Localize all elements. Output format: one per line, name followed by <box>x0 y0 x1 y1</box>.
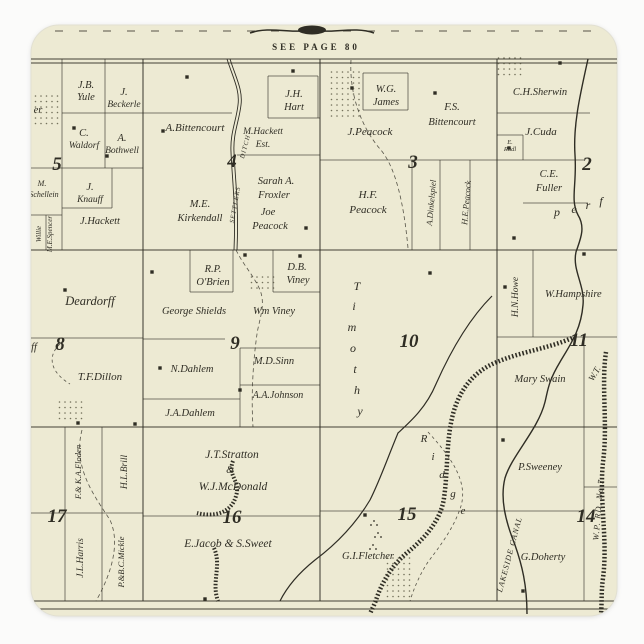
owner-name: A.A.Johnson <box>252 390 304 401</box>
marsh-symbol-dot <box>374 536 376 538</box>
owner-name: M.E.Spencer <box>46 216 54 253</box>
orchard-stipple-dot <box>256 282 258 284</box>
building-square <box>238 388 241 391</box>
owner-name: Deardorff <box>64 294 116 308</box>
see-page-note: SEE PAGE 80 <box>272 42 360 52</box>
owner-name: A.Bittencourt <box>165 122 226 134</box>
marsh-symbol-dot <box>373 520 375 522</box>
orchard-stipple-dot <box>342 82 344 84</box>
owner-name: Froxler <box>257 190 291 201</box>
orchard-stipple-dot <box>251 276 253 278</box>
building-square <box>203 597 206 600</box>
orchard-stipple-dot <box>336 99 338 101</box>
orchard-stipple-dot <box>503 57 505 59</box>
orchard-stipple-dot <box>70 418 72 420</box>
orchard-stipple-dot <box>331 93 333 95</box>
owner-name: J.Peacock <box>348 126 394 138</box>
owner-name: Joe <box>261 207 276 218</box>
orchard-stipple-dot <box>57 112 59 114</box>
orchard-stipple-dot <box>342 77 344 79</box>
orchard-stipple-dot <box>353 115 355 117</box>
marsh-symbol-dot <box>370 524 372 526</box>
building-square <box>291 69 294 72</box>
owner-name: F.& K.A.Floden <box>73 445 83 500</box>
orchard-stipple-dot <box>403 596 405 598</box>
orchard-stipple-dot <box>40 95 42 97</box>
building-square <box>501 438 504 441</box>
orchard-stipple-dot <box>342 115 344 117</box>
orchard-stipple-dot <box>57 95 59 97</box>
orchard-stipple-dot <box>398 585 400 587</box>
owner-name: P.Sweeney <box>517 462 562 473</box>
owner-name: J.Hackett <box>80 216 121 227</box>
orchard-stipple-dot <box>342 93 344 95</box>
owner-name: W.Hampshire <box>545 289 602 300</box>
orchard-stipple-dot <box>59 407 61 409</box>
orchard-stipple-dot <box>35 123 37 125</box>
orchard-stipple-dot <box>331 88 333 90</box>
timothy-letter: m <box>348 320 357 334</box>
orchard-stipple-dot <box>520 63 522 65</box>
orchard-stipple-dot <box>387 557 389 559</box>
building-square <box>363 513 366 516</box>
owner-name: James <box>373 97 399 108</box>
orchard-stipple-dot <box>51 117 53 119</box>
orchard-stipple-dot <box>81 401 83 403</box>
owner-name: H.F. <box>358 189 378 201</box>
orchard-stipple-dot <box>336 93 338 95</box>
orchard-stipple-dot <box>398 557 400 559</box>
orchard-stipple-dot <box>57 106 59 108</box>
orchard-stipple-dot <box>358 104 360 106</box>
plat-map-sticker: SEE PAGE 80 J.B.YuleJ.BeckerleC.WaldorfA… <box>0 0 644 644</box>
building-square <box>243 253 246 256</box>
orchard-stipple-dot <box>51 123 53 125</box>
owner-name: C. <box>79 128 89 139</box>
orchard-stipple-dot <box>35 101 37 103</box>
orchard-stipple-dot <box>267 287 269 289</box>
orchard-stipple-dot <box>59 401 61 403</box>
orchard-stipple-dot <box>273 287 275 289</box>
orchard-stipple-dot <box>358 99 360 101</box>
orchard-stipple-dot <box>256 287 258 289</box>
orchard-stipple-dot <box>46 112 48 114</box>
owner-name: Peacock <box>348 204 387 216</box>
owner-name: Yule <box>77 92 95 103</box>
marsh-symbol-dot <box>372 544 374 546</box>
orchard-stipple-dot <box>353 104 355 106</box>
orchard-stipple-dot <box>51 112 53 114</box>
marsh-symbol-dot <box>369 548 371 550</box>
section-number: 4 <box>226 151 237 172</box>
orchard-stipple-dot <box>392 579 394 581</box>
building-square <box>185 75 188 78</box>
building-square <box>63 288 66 291</box>
orchard-stipple-dot <box>75 418 77 420</box>
ridge-letter: R <box>420 433 428 445</box>
owner-name: Willie <box>35 226 43 242</box>
orchard-stipple-dot <box>387 563 389 565</box>
orchard-stipple-dot <box>35 112 37 114</box>
orchard-stipple-dot <box>392 568 394 570</box>
orchard-stipple-dot <box>347 82 349 84</box>
orchard-stipple-dot <box>353 77 355 79</box>
orchard-stipple-dot <box>347 93 349 95</box>
marsh-symbol-dot <box>376 524 378 526</box>
orchard-stipple-dot <box>273 282 275 284</box>
owner-name: Fuller <box>535 183 563 194</box>
orchard-stipple-dot <box>262 276 264 278</box>
owner-name: J.B. <box>78 80 94 91</box>
orchard-stipple-dot <box>64 401 66 403</box>
owner-name: Mary Swain <box>513 374 565 385</box>
orchard-stipple-dot <box>358 93 360 95</box>
section-number: 15 <box>398 504 418 525</box>
orchard-stipple-dot <box>342 71 344 73</box>
owner-name: Viney <box>286 275 309 286</box>
timothy-letter: h <box>354 383 360 397</box>
section-number: 8 <box>55 334 65 355</box>
owner-name: Knauff <box>76 194 104 205</box>
section-number: 10 <box>400 331 420 352</box>
orchard-stipple-dot <box>509 63 511 65</box>
orchard-stipple-dot <box>51 106 53 108</box>
orchard-stipple-dot <box>514 63 516 65</box>
orchard-stipple-dot <box>498 57 500 59</box>
orchard-stipple-dot <box>331 71 333 73</box>
orchard-stipple-dot <box>353 71 355 73</box>
orchard-stipple-dot <box>503 63 505 65</box>
orchard-stipple-dot <box>40 117 42 119</box>
orchard-stipple-dot <box>331 110 333 112</box>
orchard-stipple-dot <box>251 282 253 284</box>
owner-name: Peacock <box>251 221 288 232</box>
orchard-stipple-dot <box>256 276 258 278</box>
orchard-stipple-dot <box>387 568 389 570</box>
orchard-stipple-dot <box>409 579 411 581</box>
sticker-paper <box>31 25 617 616</box>
orchard-stipple-dot <box>514 57 516 59</box>
building-square <box>298 254 301 257</box>
orchard-stipple-dot <box>398 563 400 565</box>
orchard-stipple-dot <box>398 568 400 570</box>
owner-name: D.B. <box>286 262 306 273</box>
owner-name: E.Jacob & S.Sweet <box>183 538 272 550</box>
owner-name: G.I.Fletcher <box>342 551 395 562</box>
owner-name: Est. <box>255 140 271 150</box>
orchard-stipple-dot <box>336 115 338 117</box>
ridge-letter: d <box>439 469 445 481</box>
orchard-stipple-dot <box>347 88 349 90</box>
owner-name: F.S. <box>443 102 460 113</box>
orchard-stipple-dot <box>59 412 61 414</box>
orchard-stipple-dot <box>398 579 400 581</box>
orchard-stipple-dot <box>514 74 516 76</box>
owner-name: C.H.Sherwin <box>513 87 567 98</box>
building-square <box>507 146 510 149</box>
orchard-stipple-dot <box>403 590 405 592</box>
orchard-stipple-dot <box>35 106 37 108</box>
orchard-stipple-dot <box>353 93 355 95</box>
owner-name: M. <box>37 179 47 188</box>
orchard-stipple-dot <box>70 412 72 414</box>
orchard-stipple-dot <box>40 101 42 103</box>
orchard-stipple-dot <box>347 104 349 106</box>
section-number: 16 <box>223 507 243 528</box>
owner-name: Sarah A. <box>258 176 295 187</box>
sticker-product-page: SEE PAGE 80 J.B.YuleJ.BeckerleC.WaldorfA… <box>0 0 644 644</box>
owner-name: H.N.Howe <box>511 277 521 318</box>
owner-name: T.F.Dillon <box>78 371 123 383</box>
owner-name: J.Cuda <box>525 126 557 138</box>
orchard-stipple-dot <box>70 407 72 409</box>
orchard-stipple-dot <box>40 123 42 125</box>
timothy-letter: i <box>352 299 355 313</box>
orchard-stipple-dot <box>409 585 411 587</box>
orchard-stipple-dot <box>46 106 48 108</box>
building-square <box>161 129 164 132</box>
orchard-stipple-dot <box>387 585 389 587</box>
orchard-stipple-dot <box>40 106 42 108</box>
marsh-symbol-dot <box>380 536 382 538</box>
orchard-stipple-dot <box>353 82 355 84</box>
orchard-stipple-dot <box>51 101 53 103</box>
owner-name: O'Brien <box>196 277 229 288</box>
orchard-stipple-dot <box>331 77 333 79</box>
owner-name: p <box>553 205 560 219</box>
orchard-stipple-dot <box>75 407 77 409</box>
building-square <box>304 226 307 229</box>
orchard-stipple-dot <box>347 77 349 79</box>
orchard-stipple-dot <box>347 115 349 117</box>
owner-name: M.D.Sinn <box>253 356 294 367</box>
marsh-symbol-dot <box>377 532 379 534</box>
owner-name: G.Doherty <box>521 552 566 563</box>
orchard-stipple-dot <box>387 579 389 581</box>
orchard-stipple-dot <box>509 74 511 76</box>
orchard-stipple-dot <box>342 99 344 101</box>
orchard-stipple-dot <box>75 401 77 403</box>
map-line <box>296 21 328 24</box>
orchard-stipple-dot <box>81 412 83 414</box>
orchard-stipple-dot <box>392 574 394 576</box>
orchard-stipple-dot <box>40 112 42 114</box>
orchard-stipple-dot <box>331 99 333 101</box>
orchard-stipple-dot <box>347 99 349 101</box>
orchard-stipple-dot <box>409 557 411 559</box>
owner-name: Beckerle <box>107 100 140 110</box>
section-number: 11 <box>570 330 588 351</box>
orchard-stipple-dot <box>514 68 516 70</box>
owner-name: M.E. <box>189 199 210 210</box>
orchard-stipple-dot <box>503 74 505 76</box>
orchard-stipple-dot <box>358 110 360 112</box>
owner-name: J. <box>120 87 127 98</box>
orchard-stipple-dot <box>331 82 333 84</box>
orchard-stipple-dot <box>409 563 411 565</box>
ridge-letter: i <box>431 451 434 463</box>
orchard-stipple-dot <box>403 585 405 587</box>
orchard-stipple-dot <box>336 77 338 79</box>
orchard-stipple-dot <box>81 407 83 409</box>
owner-name: E. <box>506 139 513 146</box>
orchard-stipple-dot <box>353 110 355 112</box>
owner-name: & <box>226 465 234 476</box>
orchard-stipple-dot <box>353 88 355 90</box>
building-square <box>150 270 153 273</box>
owner-name: J.L.Harris <box>76 538 86 578</box>
orchard-stipple-dot <box>403 568 405 570</box>
orchard-stipple-dot <box>46 117 48 119</box>
orchard-stipple-dot <box>331 104 333 106</box>
orchard-stipple-dot <box>392 563 394 565</box>
section-number: 5 <box>52 154 62 175</box>
building-square <box>433 91 436 94</box>
orchard-stipple-dot <box>347 110 349 112</box>
orchard-stipple-dot <box>398 596 400 598</box>
orchard-stipple-dot <box>342 110 344 112</box>
orchard-stipple-dot <box>358 77 360 79</box>
orchard-stipple-dot <box>336 88 338 90</box>
section-number: 2 <box>581 154 592 175</box>
orchard-stipple-dot <box>51 95 53 97</box>
owner-name: Wm Viney <box>253 306 295 317</box>
ridge-letter: e <box>461 505 466 517</box>
orchard-stipple-dot <box>57 117 59 119</box>
orchard-stipple-dot <box>75 412 77 414</box>
owner-name: R.P. <box>204 264 222 275</box>
orchard-stipple-dot <box>358 82 360 84</box>
owner-name: J.H. <box>285 89 303 100</box>
orchard-stipple-dot <box>331 115 333 117</box>
orchard-stipple-dot <box>64 412 66 414</box>
owner-name: J. <box>86 182 93 193</box>
orchard-stipple-dot <box>81 418 83 420</box>
owner-name: A. <box>116 133 126 144</box>
section-number: 3 <box>407 152 418 173</box>
orchard-stipple-dot <box>46 101 48 103</box>
orchard-stipple-dot <box>520 68 522 70</box>
owner-name: W.G. <box>376 84 397 95</box>
orchard-stipple-dot <box>267 276 269 278</box>
building-square <box>512 236 515 239</box>
owner-name: Schellein <box>29 190 58 199</box>
owner-name: Kirkendall <box>177 213 223 224</box>
orchard-stipple-dot <box>57 101 59 103</box>
orchard-stipple-dot <box>498 68 500 70</box>
orchard-stipple-dot <box>64 407 66 409</box>
owner-name: N.Dahlem <box>170 364 214 375</box>
ridge-letter: g <box>450 488 456 500</box>
orchard-stipple-dot <box>403 557 405 559</box>
orchard-stipple-dot <box>387 590 389 592</box>
orchard-stipple-dot <box>398 590 400 592</box>
orchard-stipple-dot <box>59 418 61 420</box>
owner-name: Waldorf <box>69 140 101 151</box>
orchard-stipple-dot <box>46 95 48 97</box>
orchard-stipple-dot <box>403 574 405 576</box>
orchard-stipple-dot <box>392 596 394 598</box>
orchard-stipple-dot <box>347 71 349 73</box>
orchard-stipple-dot <box>35 95 37 97</box>
orchard-stipple-dot <box>70 401 72 403</box>
owner-name: J.T.Stratton <box>205 449 259 461</box>
timothy-letter: y <box>356 404 363 418</box>
orchard-stipple-dot <box>262 287 264 289</box>
orchard-stipple-dot <box>392 590 394 592</box>
orchard-stipple-dot <box>46 123 48 125</box>
building-square <box>76 421 79 424</box>
building-square <box>158 366 161 369</box>
orchard-stipple-dot <box>342 88 344 90</box>
section-number: 9 <box>230 333 240 354</box>
owner-name: Bittencourt <box>428 117 476 128</box>
owner-name: P.&B.C.Mickle <box>116 536 126 588</box>
owner-name: Bothwell <box>105 146 139 156</box>
orchard-stipple-dot <box>520 57 522 59</box>
owner-name: Hart <box>283 102 305 113</box>
orchard-stipple-dot <box>498 74 500 76</box>
orchard-stipple-dot <box>64 418 66 420</box>
orchard-stipple-dot <box>409 574 411 576</box>
building-square <box>521 589 524 592</box>
building-square <box>582 252 585 255</box>
orchard-stipple-dot <box>509 68 511 70</box>
orchard-stipple-dot <box>336 82 338 84</box>
orchard-stipple-dot <box>336 110 338 112</box>
orchard-stipple-dot <box>336 104 338 106</box>
orchard-stipple-dot <box>251 287 253 289</box>
orchard-stipple-dot <box>403 579 405 581</box>
orchard-stipple-dot <box>35 117 37 119</box>
orchard-stipple-dot <box>358 88 360 90</box>
orchard-stipple-dot <box>57 123 59 125</box>
orchard-stipple-dot <box>392 585 394 587</box>
section-number: 17 <box>48 506 69 527</box>
owner-name: e <box>571 202 577 216</box>
building-square <box>105 154 108 157</box>
orchard-stipple-dot <box>336 71 338 73</box>
orchard-stipple-dot <box>409 596 411 598</box>
orchard-stipple-dot <box>273 276 275 278</box>
timothy-letter: o <box>350 341 356 355</box>
building-square <box>133 422 136 425</box>
orchard-stipple-dot <box>398 574 400 576</box>
orchard-stipple-dot <box>409 568 411 570</box>
orchard-stipple-dot <box>509 57 511 59</box>
orchard-stipple-dot <box>358 71 360 73</box>
orchard-stipple-dot <box>503 68 505 70</box>
section-number: 14 <box>577 506 596 527</box>
building-square <box>428 271 431 274</box>
owner-name: George Shields <box>162 306 226 317</box>
orchard-stipple-dot <box>387 596 389 598</box>
orchard-stipple-dot <box>387 574 389 576</box>
owner-name: J.A.Dahlem <box>165 408 215 419</box>
owner-name: H.L.Brill <box>120 454 130 490</box>
orchard-stipple-dot <box>498 63 500 65</box>
building-square <box>503 285 506 288</box>
orchard-stipple-dot <box>358 115 360 117</box>
marsh-symbol-dot <box>375 548 377 550</box>
orchard-stipple-dot <box>342 104 344 106</box>
orchard-stipple-dot <box>353 99 355 101</box>
orchard-stipple-dot <box>262 282 264 284</box>
building-square <box>72 126 75 129</box>
orchard-stipple-dot <box>392 557 394 559</box>
owner-name: r <box>586 198 591 212</box>
orchard-stipple-dot <box>520 74 522 76</box>
